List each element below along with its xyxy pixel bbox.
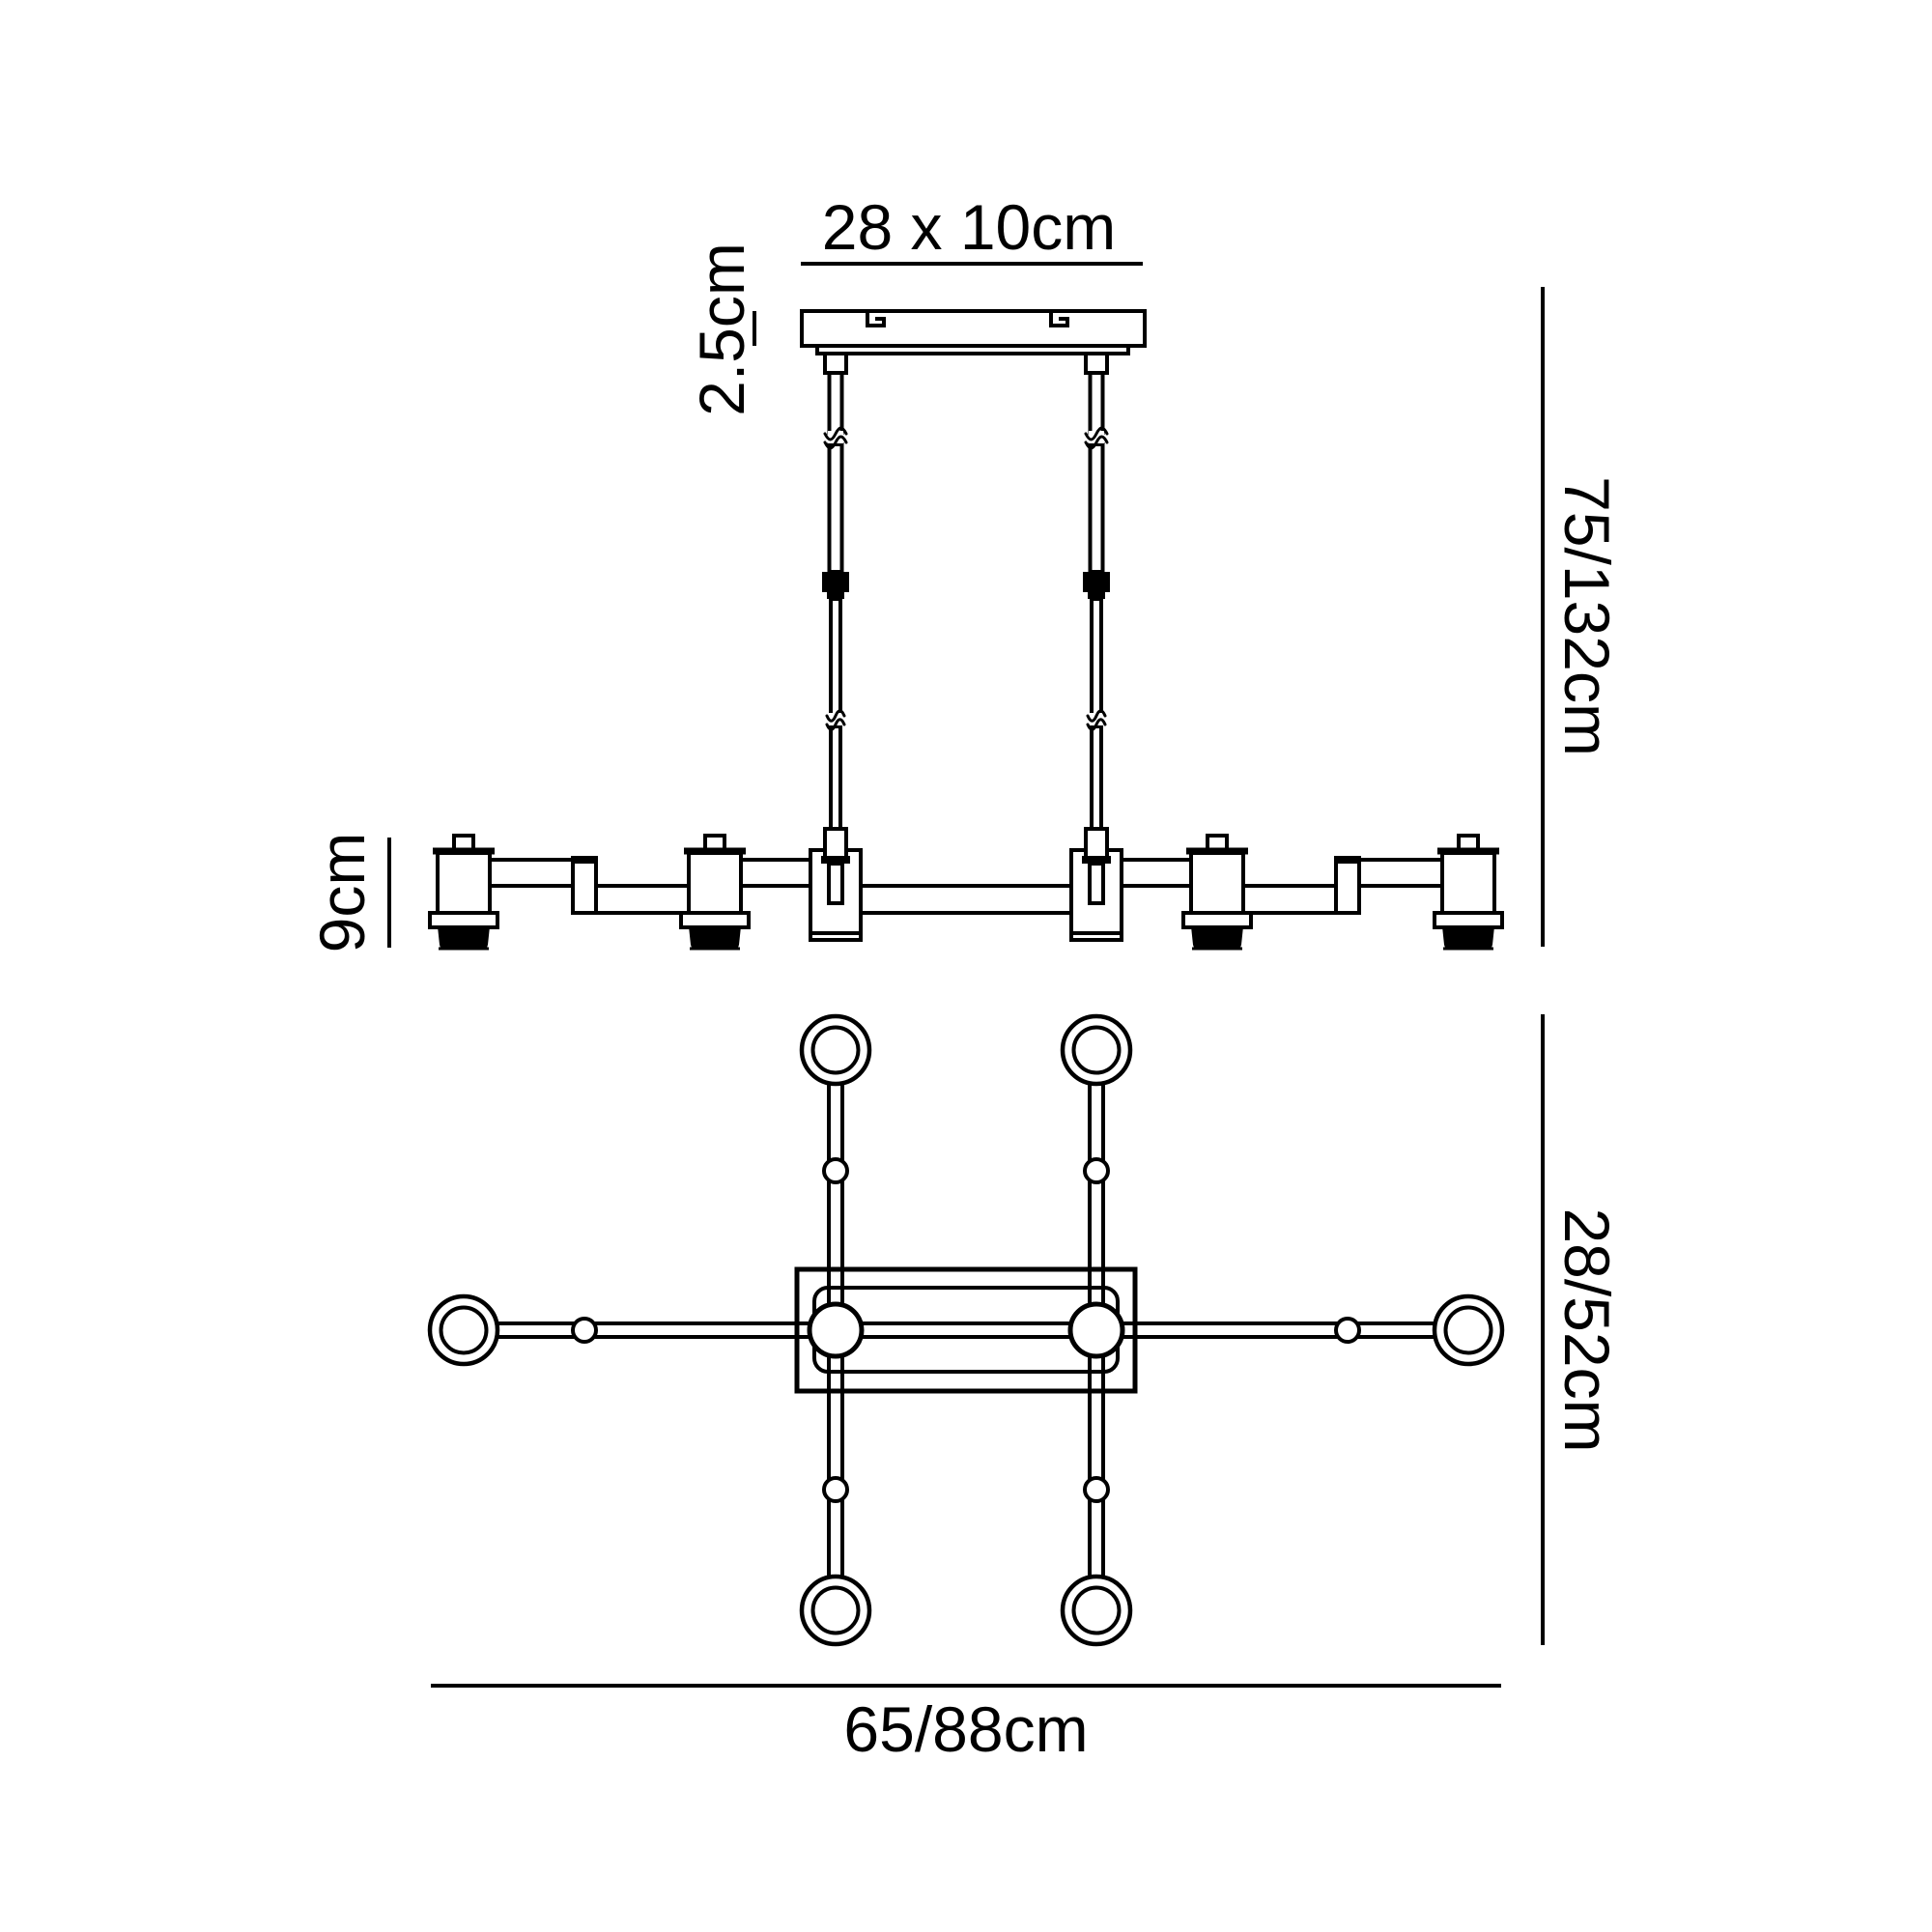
label-plan-depth: 28/52cm [1551,1207,1623,1452]
dimension-annotations: 28 x 10cm 2.5cm 75/132cm 9cm 28/52cm 65/… [306,191,1623,1765]
lamp-holder-4 [1435,836,1502,949]
plan-view [430,1016,1502,1644]
bar-arm-upper-2 [741,860,810,886]
dimension-drawing: 28 x 10cm 2.5cm 75/132cm 9cm 28/52cm 65/… [0,0,1932,1932]
plan-ring-left [430,1296,497,1364]
plan-horizontal-arm [496,1323,1436,1337]
bar-arm-lower-1 [595,886,689,913]
label-drop-height: 75/132cm [1551,476,1623,756]
side-elevation-view [430,311,1502,949]
plan-joint-top-left [824,1159,847,1182]
ceiling-canopy [802,311,1145,354]
lamp-holder-3 [1183,836,1251,949]
bar-connector-2 [1334,856,1361,913]
suspension-rod-left [821,354,850,903]
suspension-rod-right [1082,354,1111,903]
plan-joint-bottom-right [1085,1478,1108,1501]
label-bar-height: 9cm [306,833,378,953]
plan-joint-bottom-left [824,1478,847,1501]
bar-arm-upper-4 [1359,860,1442,886]
light-bar [430,836,1502,949]
plan-hub-left [810,1304,862,1356]
bar-arm-lower-2 [1243,886,1336,913]
plan-hub-right [1070,1304,1122,1356]
bar-arm-upper-3 [1122,860,1191,886]
lamp-holder-2 [681,836,749,949]
plan-joint-left [573,1319,596,1342]
label-plan-width: 65/88cm [843,1693,1088,1765]
plan-ring-right [1435,1296,1502,1364]
lamp-holder-1 [430,836,497,949]
plan-ring-top-left [802,1016,869,1084]
plan-ring-bottom-right [1063,1577,1130,1644]
label-canopy-thickness: 2.5cm [686,242,757,416]
plan-ring-bottom-left [802,1577,869,1644]
bar-center-arm [861,886,1071,913]
diagram-svg: 28 x 10cm 2.5cm 75/132cm 9cm 28/52cm 65/… [0,0,1932,1932]
bar-connector-1 [571,856,598,913]
plan-joint-right [1336,1319,1359,1342]
bar-arm-upper-1 [490,860,574,886]
plan-joint-top-right [1085,1159,1108,1182]
plan-ring-top-right [1063,1016,1130,1084]
label-canopy-size: 28 x 10cm [822,191,1116,263]
